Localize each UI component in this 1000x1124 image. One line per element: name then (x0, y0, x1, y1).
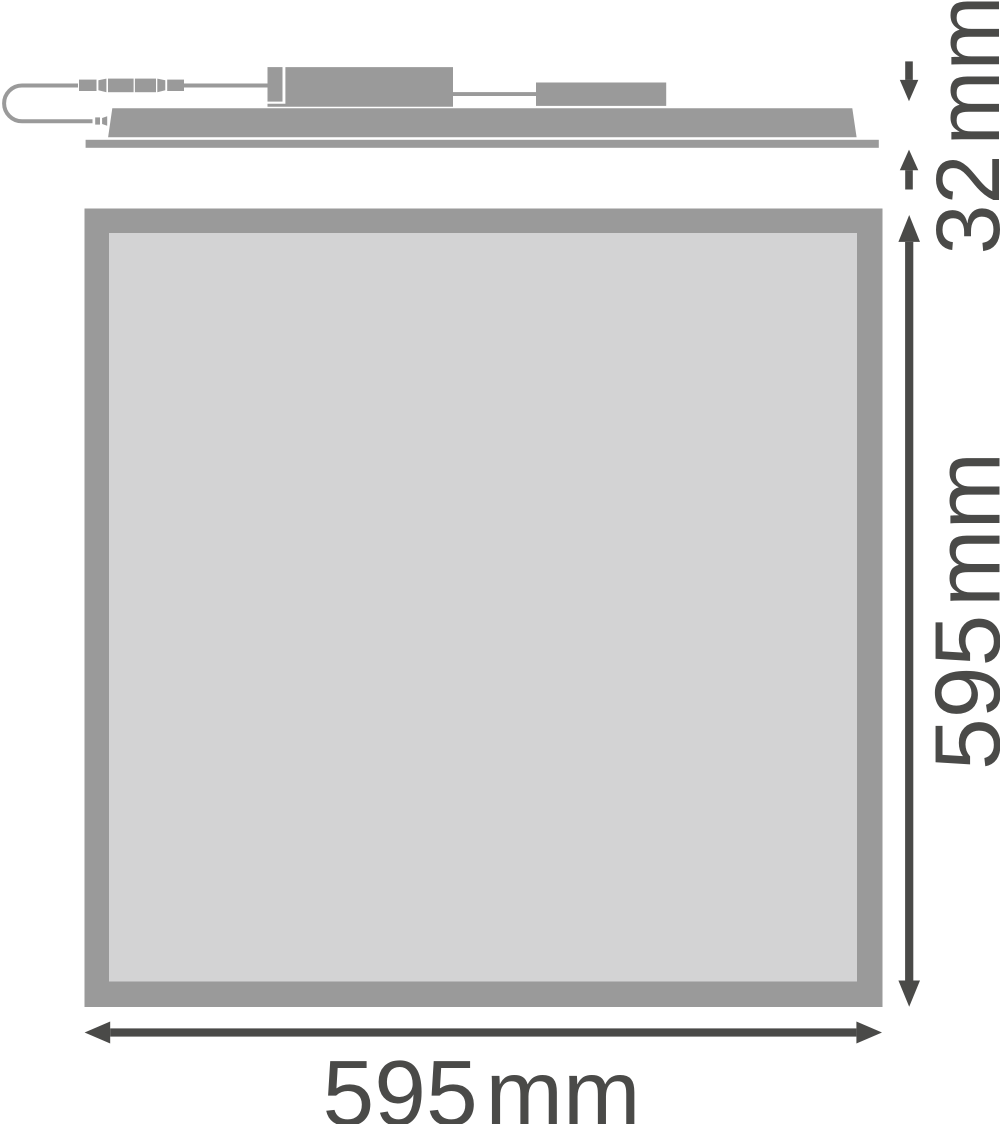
svg-text:32: 32 (919, 154, 1000, 254)
svg-text:595: 595 (323, 1041, 478, 1124)
svg-text:mm: mm (486, 1041, 641, 1124)
svg-text:mm: mm (916, 452, 1000, 607)
svg-text:595: 595 (916, 615, 1000, 770)
svg-text:mm: mm (919, 0, 1000, 146)
